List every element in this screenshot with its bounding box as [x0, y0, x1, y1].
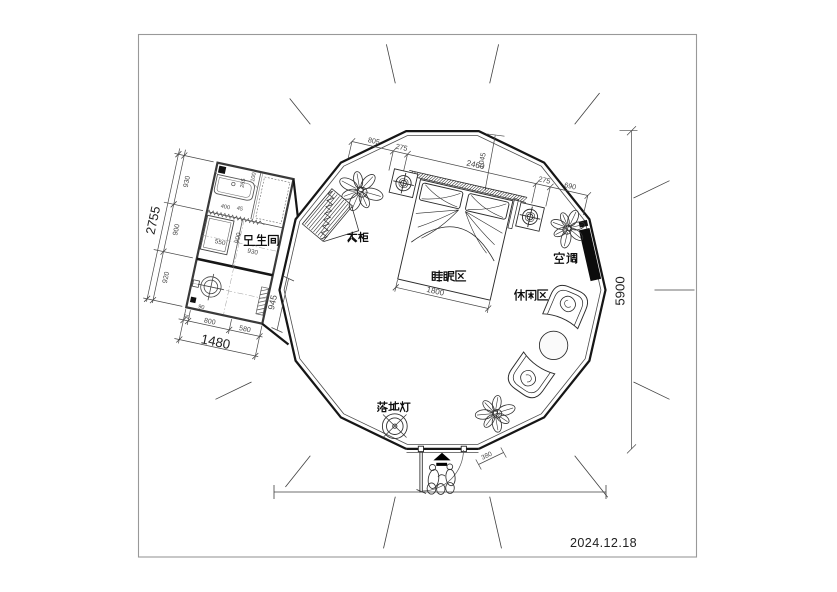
svg-text:580: 580 — [238, 325, 251, 334]
svg-text:930: 930 — [183, 175, 192, 188]
svg-text:2024.12.18: 2024.12.18 — [570, 536, 637, 550]
svg-text:945: 945 — [266, 294, 279, 311]
svg-text:1045: 1045 — [476, 152, 488, 169]
svg-text:1480: 1480 — [200, 331, 232, 352]
svg-text:45: 45 — [236, 206, 243, 213]
svg-text:275: 275 — [538, 174, 552, 185]
svg-text:800: 800 — [203, 317, 216, 326]
svg-text:2755: 2755 — [143, 205, 164, 236]
svg-text:275: 275 — [395, 142, 409, 153]
svg-text:5900: 5900 — [613, 276, 628, 305]
svg-text:380: 380 — [480, 451, 493, 462]
svg-text:920: 920 — [162, 271, 171, 284]
svg-text:900: 900 — [172, 223, 181, 236]
svg-text:805: 805 — [367, 135, 381, 146]
svg-text:90: 90 — [198, 304, 205, 311]
